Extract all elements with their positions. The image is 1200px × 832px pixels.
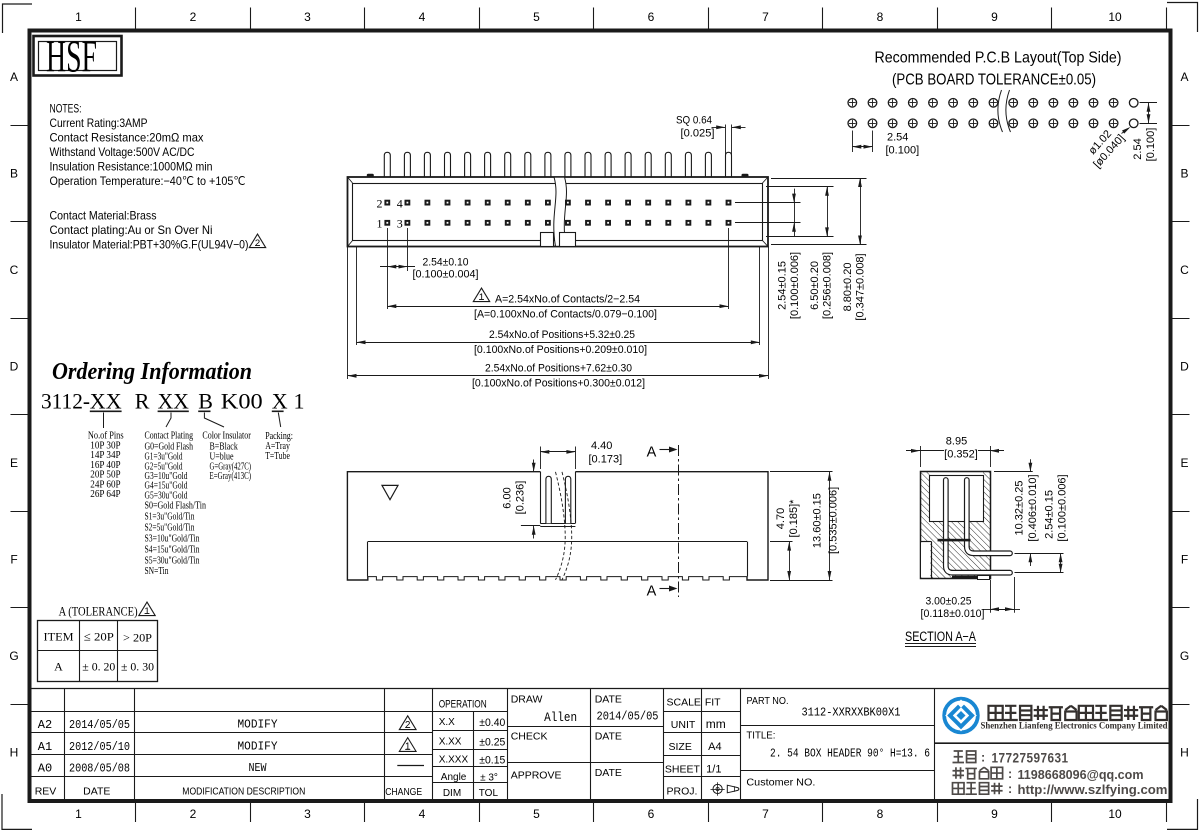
svg-text:2.54±0.15: 2.54±0.15: [777, 261, 789, 310]
svg-text:C: C: [10, 263, 19, 277]
svg-text:SIZE: SIZE: [669, 741, 692, 753]
svg-text:2: 2: [377, 197, 383, 211]
svg-text:6.00: 6.00: [502, 487, 514, 508]
svg-text:MODIFY: MODIFY: [238, 740, 278, 754]
svg-text:E=Gray(413C): E=Gray(413C): [210, 471, 252, 482]
svg-text:MODIFICATION DESCRIPTION: MODIFICATION DESCRIPTION: [182, 786, 305, 798]
svg-text:± 0. 30: ± 0. 30: [121, 660, 154, 674]
svg-text:S4=15u"Gold/Tin: S4=15u"Gold/Tin: [145, 545, 201, 556]
svg-text:1: 1: [405, 742, 410, 753]
svg-text:3112-: 3112-: [41, 389, 90, 414]
svg-text:G: G: [1180, 649, 1189, 663]
svg-text:2.54±0.10: 2.54±0.10: [423, 257, 469, 269]
svg-text:TITLE:: TITLE:: [746, 729, 775, 741]
svg-text:SECTION A−A: SECTION A−A: [905, 629, 976, 644]
svg-text:X.XXX: X.XXX: [439, 755, 469, 766]
svg-text:A: A: [54, 660, 63, 674]
svg-text:[0.256±0.008]: [0.256±0.008]: [822, 252, 834, 319]
svg-text:B: B: [198, 389, 213, 414]
svg-text:[0.118±0.010]: [0.118±0.010]: [921, 608, 985, 620]
svg-text:OPERATION: OPERATION: [439, 699, 487, 711]
svg-text:6: 6: [648, 807, 655, 821]
svg-text:C: C: [1180, 263, 1189, 277]
svg-text:D: D: [1180, 359, 1189, 373]
svg-text:F: F: [1181, 553, 1188, 567]
svg-text:H: H: [10, 746, 19, 760]
svg-text:8: 8: [877, 807, 884, 821]
svg-text:2.54: 2.54: [887, 132, 908, 144]
svg-text:X.X: X.X: [439, 717, 455, 728]
svg-text:S3=10u"Gold/Tin: S3=10u"Gold/Tin: [145, 534, 201, 545]
svg-text:± 3°: ± 3°: [480, 773, 498, 784]
svg-text:PART NO.: PART NO.: [747, 695, 789, 707]
svg-text:Angle: Angle: [441, 772, 467, 783]
svg-text:[0.100xNo.of Positions+0.300±: [0.100xNo.of Positions+0.300±0.012]: [472, 377, 645, 389]
svg-text:Color Insulator: Color Insulator: [202, 430, 251, 441]
svg-text:Customer NO.: Customer NO.: [746, 777, 815, 789]
svg-text:MODIFY: MODIFY: [238, 718, 278, 732]
svg-text:CHANGE: CHANGE: [385, 786, 422, 798]
svg-text:Contact Resistance:20mΩ ma: Contact Resistance:20mΩ max: [50, 130, 204, 144]
svg-text:HSF: HSF: [46, 32, 97, 82]
svg-text:±0.25: ±0.25: [479, 737, 505, 749]
svg-text:Insulation Resistance:1000MΩ: Insulation Resistance:1000MΩ min: [50, 160, 213, 174]
svg-text:A: A: [1180, 70, 1188, 84]
svg-text:S2=5u"Gold/Tin: S2=5u"Gold/Tin: [145, 523, 196, 534]
svg-text:[0.406±0.010]: [0.406±0.010]: [1027, 474, 1039, 541]
svg-text:B: B: [10, 166, 18, 180]
svg-text:2012/05/10: 2012/05/10: [69, 740, 130, 754]
svg-text:2: 2: [405, 720, 410, 731]
svg-text:17727597631: 17727597631: [992, 751, 1069, 766]
svg-text:≤ 20P: ≤ 20P: [84, 630, 114, 644]
svg-text:1/1: 1/1: [706, 763, 721, 775]
svg-text:7: 7: [762, 807, 769, 821]
svg-text:NOTES:: NOTES:: [50, 101, 82, 115]
svg-text:13.60±0.15: 13.60±0.15: [812, 493, 824, 548]
svg-text:REV: REV: [35, 786, 57, 798]
svg-text:1: 1: [377, 217, 383, 231]
svg-text:[0.100]: [0.100]: [1145, 128, 1157, 162]
svg-text:SN=Tin: SN=Tin: [145, 566, 170, 577]
svg-text:5: 5: [533, 10, 540, 24]
svg-text:2008/05/08: 2008/05/08: [69, 761, 130, 775]
svg-text:2.54±0.15: 2.54±0.15: [1043, 490, 1055, 539]
svg-text:± 0. 20: ± 0. 20: [82, 660, 115, 674]
svg-text:A (TOLERANCE): A (TOLERANCE): [59, 603, 138, 618]
svg-text:2014/05/05: 2014/05/05: [597, 710, 659, 724]
svg-text:S1=3u"Gold/Tin: S1=3u"Gold/Tin: [145, 512, 196, 523]
svg-text:1: 1: [479, 292, 484, 303]
svg-text:[0.236]: [0.236]: [515, 481, 527, 515]
svg-text:XX: XX: [158, 389, 189, 414]
svg-text:H: H: [1180, 746, 1189, 760]
svg-text:Contact Material:Brass: Contact Material:Brass: [50, 208, 157, 222]
svg-text:D: D: [10, 359, 19, 373]
svg-text:[0.535±0.006]: [0.535±0.006]: [828, 487, 840, 554]
svg-text:X.XX: X.XX: [439, 737, 462, 748]
svg-text:±0.15: ±0.15: [479, 755, 505, 767]
svg-text:Shenzhen Lianfeng Electronics: Shenzhen Lianfeng Electronics Company Li…: [981, 721, 1169, 731]
svg-text:4: 4: [419, 807, 426, 821]
svg-text:FIT: FIT: [705, 696, 721, 708]
svg-text:http://www.szlfying.com: http://www.szlfying.com: [1018, 782, 1168, 797]
svg-text:2.54: 2.54: [1132, 138, 1144, 159]
svg-text:ITEM: ITEM: [44, 630, 74, 644]
svg-text:2.54xNo.of Positions+7.62±0.3: 2.54xNo.of Positions+7.62±0.30: [485, 363, 632, 375]
svg-text:DATE: DATE: [595, 767, 622, 779]
svg-text:X: X: [272, 389, 288, 414]
svg-text:3: 3: [304, 807, 311, 821]
svg-text::: :: [1008, 782, 1012, 796]
svg-text:DATE: DATE: [83, 786, 110, 798]
svg-text:A: A: [647, 445, 657, 461]
svg-text:[0.100xNo.of Positions+0.209±: [0.100xNo.of Positions+0.209±0.010]: [474, 344, 647, 356]
svg-text::: :: [1008, 767, 1012, 781]
svg-text::: :: [981, 751, 985, 765]
svg-text:[0.352]: [0.352]: [944, 448, 978, 460]
svg-text:9: 9: [991, 10, 998, 24]
svg-text:4: 4: [397, 197, 403, 211]
svg-text:4: 4: [419, 10, 426, 24]
svg-text:S0=Gold Flash/Tin: S0=Gold Flash/Tin: [145, 501, 207, 512]
svg-text:E: E: [1180, 456, 1188, 470]
svg-text:Allen: Allen: [544, 711, 577, 725]
svg-text:A1: A1: [38, 740, 52, 754]
svg-text:> 20P: > 20P: [123, 631, 152, 645]
svg-text:Insulator Material:PBT+30%G.F: Insulator Material:PBT+30%G.F(UL94V−0): [50, 237, 249, 251]
svg-text:T=Tube: T=Tube: [265, 451, 290, 462]
svg-text:A: A: [10, 70, 18, 84]
svg-text:5: 5: [533, 807, 540, 821]
svg-text:S5=30u"Gold/Tin: S5=30u"Gold/Tin: [145, 556, 201, 567]
svg-text:4.40: 4.40: [591, 440, 612, 452]
svg-text:8.80±0.20: 8.80±0.20: [842, 263, 854, 312]
svg-text:APPROVE: APPROVE: [511, 769, 562, 781]
svg-text:10: 10: [1108, 807, 1122, 821]
svg-text:2: 2: [190, 807, 197, 821]
svg-text:[0.100±0.006]: [0.100±0.006]: [1056, 474, 1068, 541]
svg-text:K00: K00: [221, 389, 263, 414]
svg-text:1: 1: [144, 606, 149, 617]
svg-text:E: E: [10, 456, 18, 470]
svg-text:3112-XXRXXBK00X1: 3112-XXRXXBK00X1: [802, 707, 901, 720]
svg-text:DATE: DATE: [595, 693, 622, 705]
svg-text:1: 1: [75, 807, 82, 821]
svg-text:1: 1: [75, 10, 82, 24]
svg-text:1: 1: [294, 389, 305, 414]
svg-text:R: R: [135, 389, 150, 414]
svg-text:PROJ.: PROJ.: [667, 785, 698, 797]
svg-text:[0.100±0.006]: [0.100±0.006]: [789, 252, 801, 319]
svg-text:DRAW: DRAW: [511, 693, 543, 705]
svg-text:[0.100]: [0.100]: [886, 145, 920, 157]
svg-text:SCALE: SCALE: [667, 696, 701, 708]
svg-text:8: 8: [877, 10, 884, 24]
svg-text:[0.100±0.004]: [0.100±0.004]: [413, 269, 479, 281]
svg-text:B: B: [1180, 166, 1188, 180]
svg-text:3.00±0.25: 3.00±0.25: [926, 595, 972, 607]
svg-text:Current Rating:3AMP: Current Rating:3AMP: [50, 116, 148, 130]
svg-text:G: G: [9, 649, 18, 663]
svg-text:mm: mm: [706, 717, 726, 731]
svg-text:[0.025]: [0.025]: [681, 128, 715, 140]
svg-text:3: 3: [397, 217, 403, 231]
svg-text:2.54xNo.of Positions+5.32±0.2: 2.54xNo.of Positions+5.32±0.25: [489, 329, 635, 341]
svg-text:A0: A0: [38, 761, 52, 775]
svg-text:6: 6: [648, 10, 655, 24]
svg-text:A: A: [647, 584, 657, 600]
svg-text:A2: A2: [38, 718, 52, 732]
svg-text:DIM: DIM: [443, 788, 461, 799]
svg-text:SQ 0.64: SQ 0.64: [676, 115, 712, 127]
svg-text:UNIT: UNIT: [671, 719, 696, 731]
svg-text:XX: XX: [90, 389, 122, 414]
svg-text:8.95: 8.95: [946, 436, 967, 448]
svg-text:SHEET: SHEET: [665, 763, 701, 775]
svg-text:7: 7: [762, 10, 769, 24]
svg-text:A=2.54xNo.of Contacts/2−2.54: A=2.54xNo.of Contacts/2−2.54: [495, 294, 640, 306]
svg-text:Contact Plating: Contact Plating: [145, 431, 194, 442]
svg-text:26P 64P: 26P 64P: [90, 489, 120, 500]
svg-text:[0.185]*: [0.185]*: [788, 499, 800, 538]
svg-text:Ordering Information: Ordering Information: [52, 359, 252, 385]
svg-text:2: 2: [255, 238, 260, 249]
svg-text:Withstand Voltage:500V AC/DC: Withstand Voltage:500V AC/DC: [50, 145, 195, 159]
svg-text:DATE: DATE: [595, 731, 622, 743]
svg-text:10: 10: [1108, 10, 1122, 24]
svg-text:2. 54 BOX HEADER 90° H=13.: 2. 54 BOX HEADER 90° H=13. 6: [770, 747, 930, 761]
svg-text:[0.347±0.008]: [0.347±0.008]: [855, 253, 867, 320]
svg-text:6.50±0.20: 6.50±0.20: [809, 261, 821, 310]
svg-text:TOL: TOL: [479, 788, 499, 799]
svg-text:2: 2: [190, 10, 197, 24]
svg-text:Operation Temperature:−40℃ t: Operation Temperature:−40℃ to +105℃: [50, 174, 246, 188]
svg-text:9: 9: [991, 807, 998, 821]
svg-text:2014/05/05: 2014/05/05: [69, 718, 130, 732]
svg-text:3: 3: [304, 10, 311, 24]
svg-text:CHECK: CHECK: [511, 731, 548, 743]
svg-text:4.70: 4.70: [775, 508, 787, 529]
svg-text:Recommended P.C.B Layout(Top: Recommended P.C.B Layout(Top Side): [875, 50, 1122, 67]
svg-text:1198668096@qq.com: 1198668096@qq.com: [1018, 767, 1144, 782]
svg-text:(PCB BOARD TOLERANCE±0.05): (PCB BOARD TOLERANCE±0.05): [892, 72, 1096, 89]
svg-text:F: F: [10, 553, 17, 567]
svg-text:±0.40: ±0.40: [479, 717, 505, 729]
svg-text:Contact plating:Au or Sn O: Contact plating:Au or Sn Over Ni: [50, 223, 213, 237]
svg-text:[0.173]: [0.173]: [589, 454, 623, 466]
svg-text:A4: A4: [708, 741, 721, 753]
svg-text:[A=0.100xNo.of Contacts/0.079: [A=0.100xNo.of Contacts/0.079−0.100]: [474, 309, 657, 321]
svg-text:10.32±0.25: 10.32±0.25: [1014, 481, 1026, 536]
svg-text:NEW: NEW: [249, 761, 268, 775]
